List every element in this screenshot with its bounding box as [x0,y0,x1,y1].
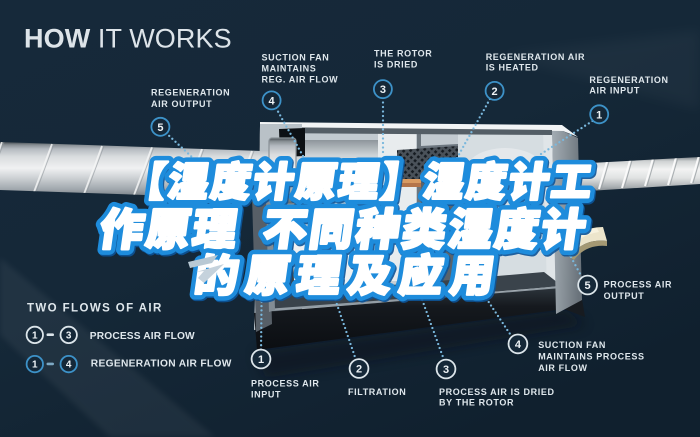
svg-text:SUCTION FAN: SUCTION FAN [538,340,606,350]
svg-text:IS DRIED: IS DRIED [374,60,418,70]
svg-text:AIR INPUT: AIR INPUT [589,86,640,96]
svg-text:1: 1 [596,109,602,121]
svg-text:OUTPUT: OUTPUT [604,291,645,301]
svg-text:TWO FLOWS OF AIR: TWO FLOWS OF AIR [27,302,163,314]
svg-text:IS HEATED: IS HEATED [486,63,539,73]
svg-text:2: 2 [356,363,362,375]
svg-text:PROCESS AIR: PROCESS AIR [251,379,320,389]
svg-text:PROCESS AIR FLOW: PROCESS AIR FLOW [90,331,195,342]
svg-text:BY THE ROTOR: BY THE ROTOR [439,398,514,408]
svg-text:FILTRATION: FILTRATION [348,387,406,397]
svg-text:3: 3 [443,364,449,376]
svg-text:4: 4 [269,95,276,107]
svg-text:MAINTAINS: MAINTAINS [262,63,317,73]
svg-text:REGENERATION: REGENERATION [589,75,668,85]
svg-text:2: 2 [492,86,498,98]
svg-text:MAINTAINS PROCESS: MAINTAINS PROCESS [538,352,644,362]
svg-text:1: 1 [32,360,38,371]
svg-text:INPUT: INPUT [251,390,281,400]
svg-text:REGENERATION AIR: REGENERATION AIR [486,52,585,62]
svg-text:AIR OUTPUT: AIR OUTPUT [151,99,212,109]
svg-text:HOW IT WORKS: HOW IT WORKS [24,24,232,54]
svg-text:REG. AIR FLOW: REG. AIR FLOW [262,75,339,85]
svg-text:SUCTION FAN: SUCTION FAN [262,52,330,62]
svg-text:THE ROTOR: THE ROTOR [374,48,432,58]
svg-text:5: 5 [585,280,591,292]
svg-text:4: 4 [515,339,522,351]
svg-text:REGENERATION: REGENERATION [151,88,230,98]
svg-text:3: 3 [380,84,386,96]
svg-text:1: 1 [258,354,264,366]
svg-text:4: 4 [66,360,72,371]
svg-text:5: 5 [157,122,163,134]
svg-text:3: 3 [66,331,72,342]
svg-text:1: 1 [32,331,38,342]
svg-text:PROCESS AIR IS DRIED: PROCESS AIR IS DRIED [439,387,555,397]
svg-text:PROCESS AIR: PROCESS AIR [604,280,673,290]
svg-text:AIR FLOW: AIR FLOW [538,363,587,373]
svg-text:REGENERATION AIR FLOW: REGENERATION AIR FLOW [91,358,232,369]
